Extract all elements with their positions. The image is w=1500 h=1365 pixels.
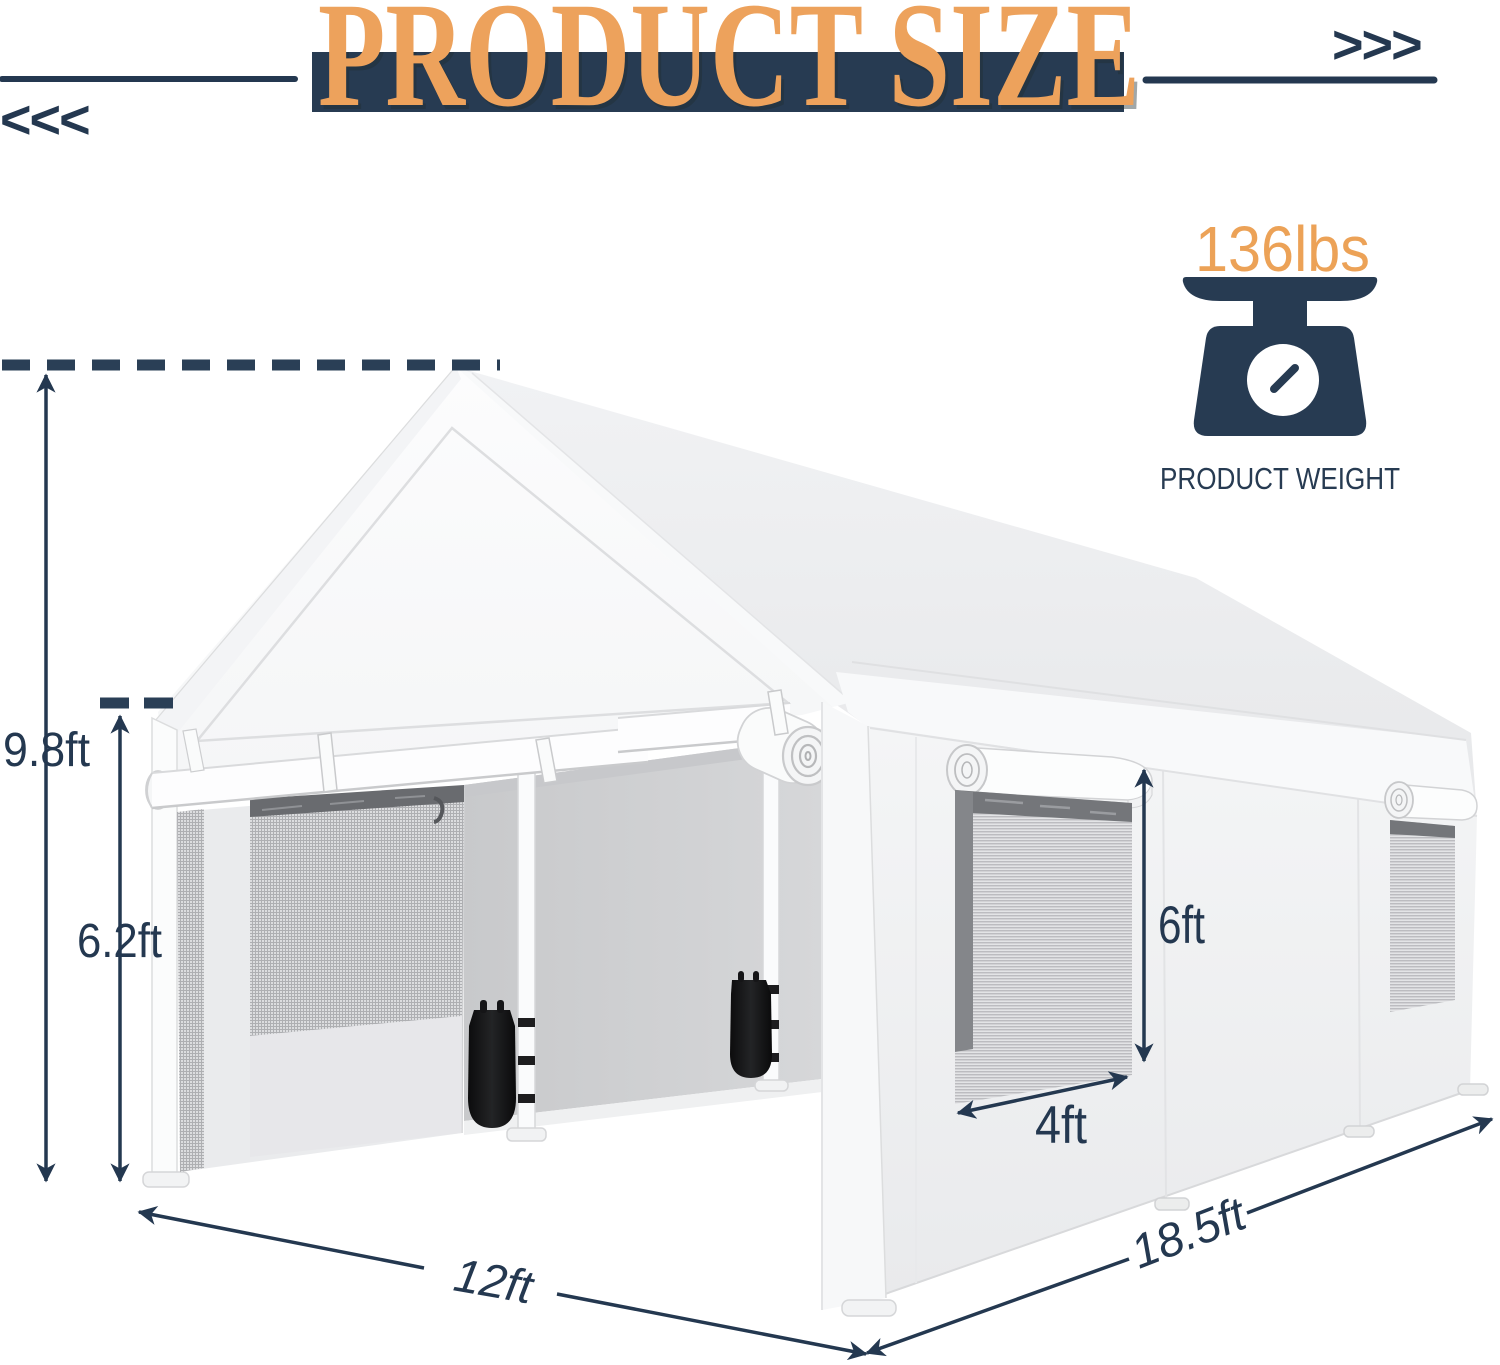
svg-text:4ft: 4ft bbox=[1035, 1096, 1087, 1155]
svg-text:>>>: >>> bbox=[1332, 15, 1421, 75]
svg-text:6.2ft: 6.2ft bbox=[77, 915, 162, 968]
svg-text:<<<: <<< bbox=[0, 90, 89, 150]
svg-text:12ft: 12ft bbox=[450, 1248, 538, 1314]
svg-text:6ft: 6ft bbox=[1158, 896, 1205, 955]
svg-text:PRODUCT SIZE: PRODUCT SIZE bbox=[318, 0, 1140, 138]
svg-text:9.8ft: 9.8ft bbox=[3, 724, 90, 777]
svg-text:PRODUCT WEIGHT: PRODUCT WEIGHT bbox=[1160, 461, 1400, 496]
svg-text:136lbs: 136lbs bbox=[1195, 213, 1370, 285]
